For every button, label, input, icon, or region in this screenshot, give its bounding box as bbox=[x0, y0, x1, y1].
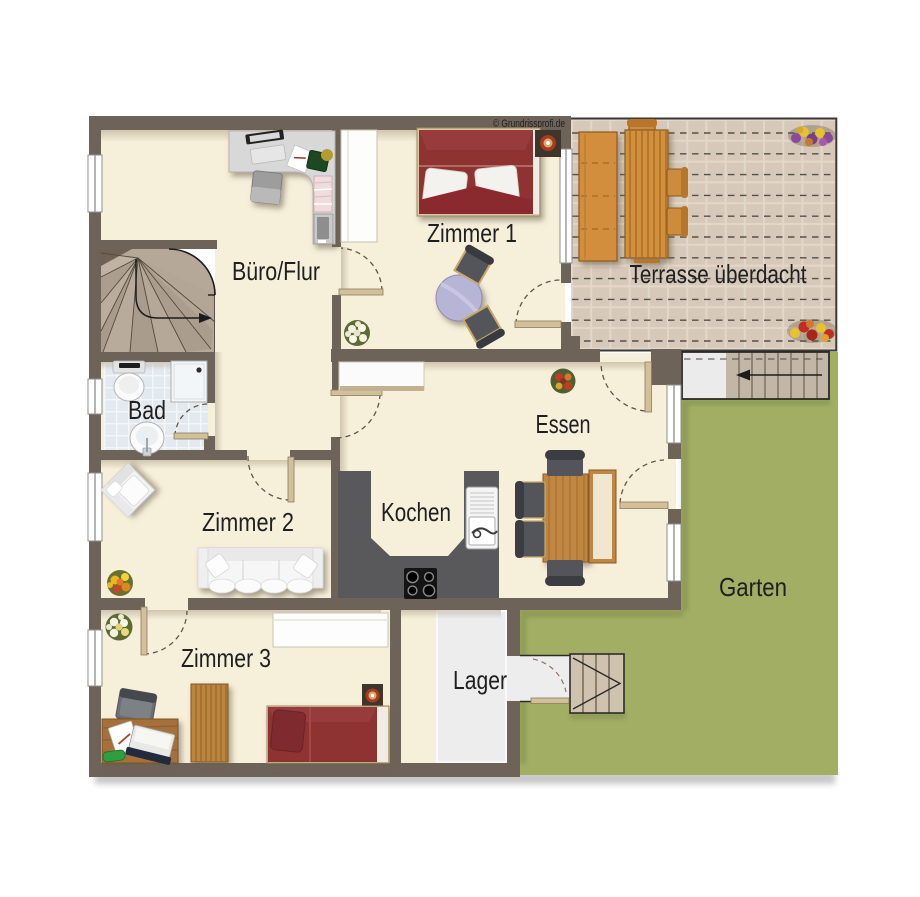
svg-text:Bad: Bad bbox=[128, 395, 166, 425]
svg-text:Terrasse überdacht: Terrasse überdacht bbox=[630, 259, 808, 289]
svg-text:Zimmer 3: Zimmer 3 bbox=[181, 643, 271, 673]
svg-text:Garten: Garten bbox=[719, 572, 787, 602]
svg-text:Büro/Flur: Büro/Flur bbox=[232, 256, 320, 286]
svg-text:Zimmer 2: Zimmer 2 bbox=[202, 507, 294, 537]
svg-text:Lager: Lager bbox=[453, 665, 507, 695]
svg-text:Kochen: Kochen bbox=[381, 497, 451, 527]
svg-text:Essen: Essen bbox=[536, 409, 591, 439]
svg-text:Zimmer 1: Zimmer 1 bbox=[427, 218, 517, 248]
